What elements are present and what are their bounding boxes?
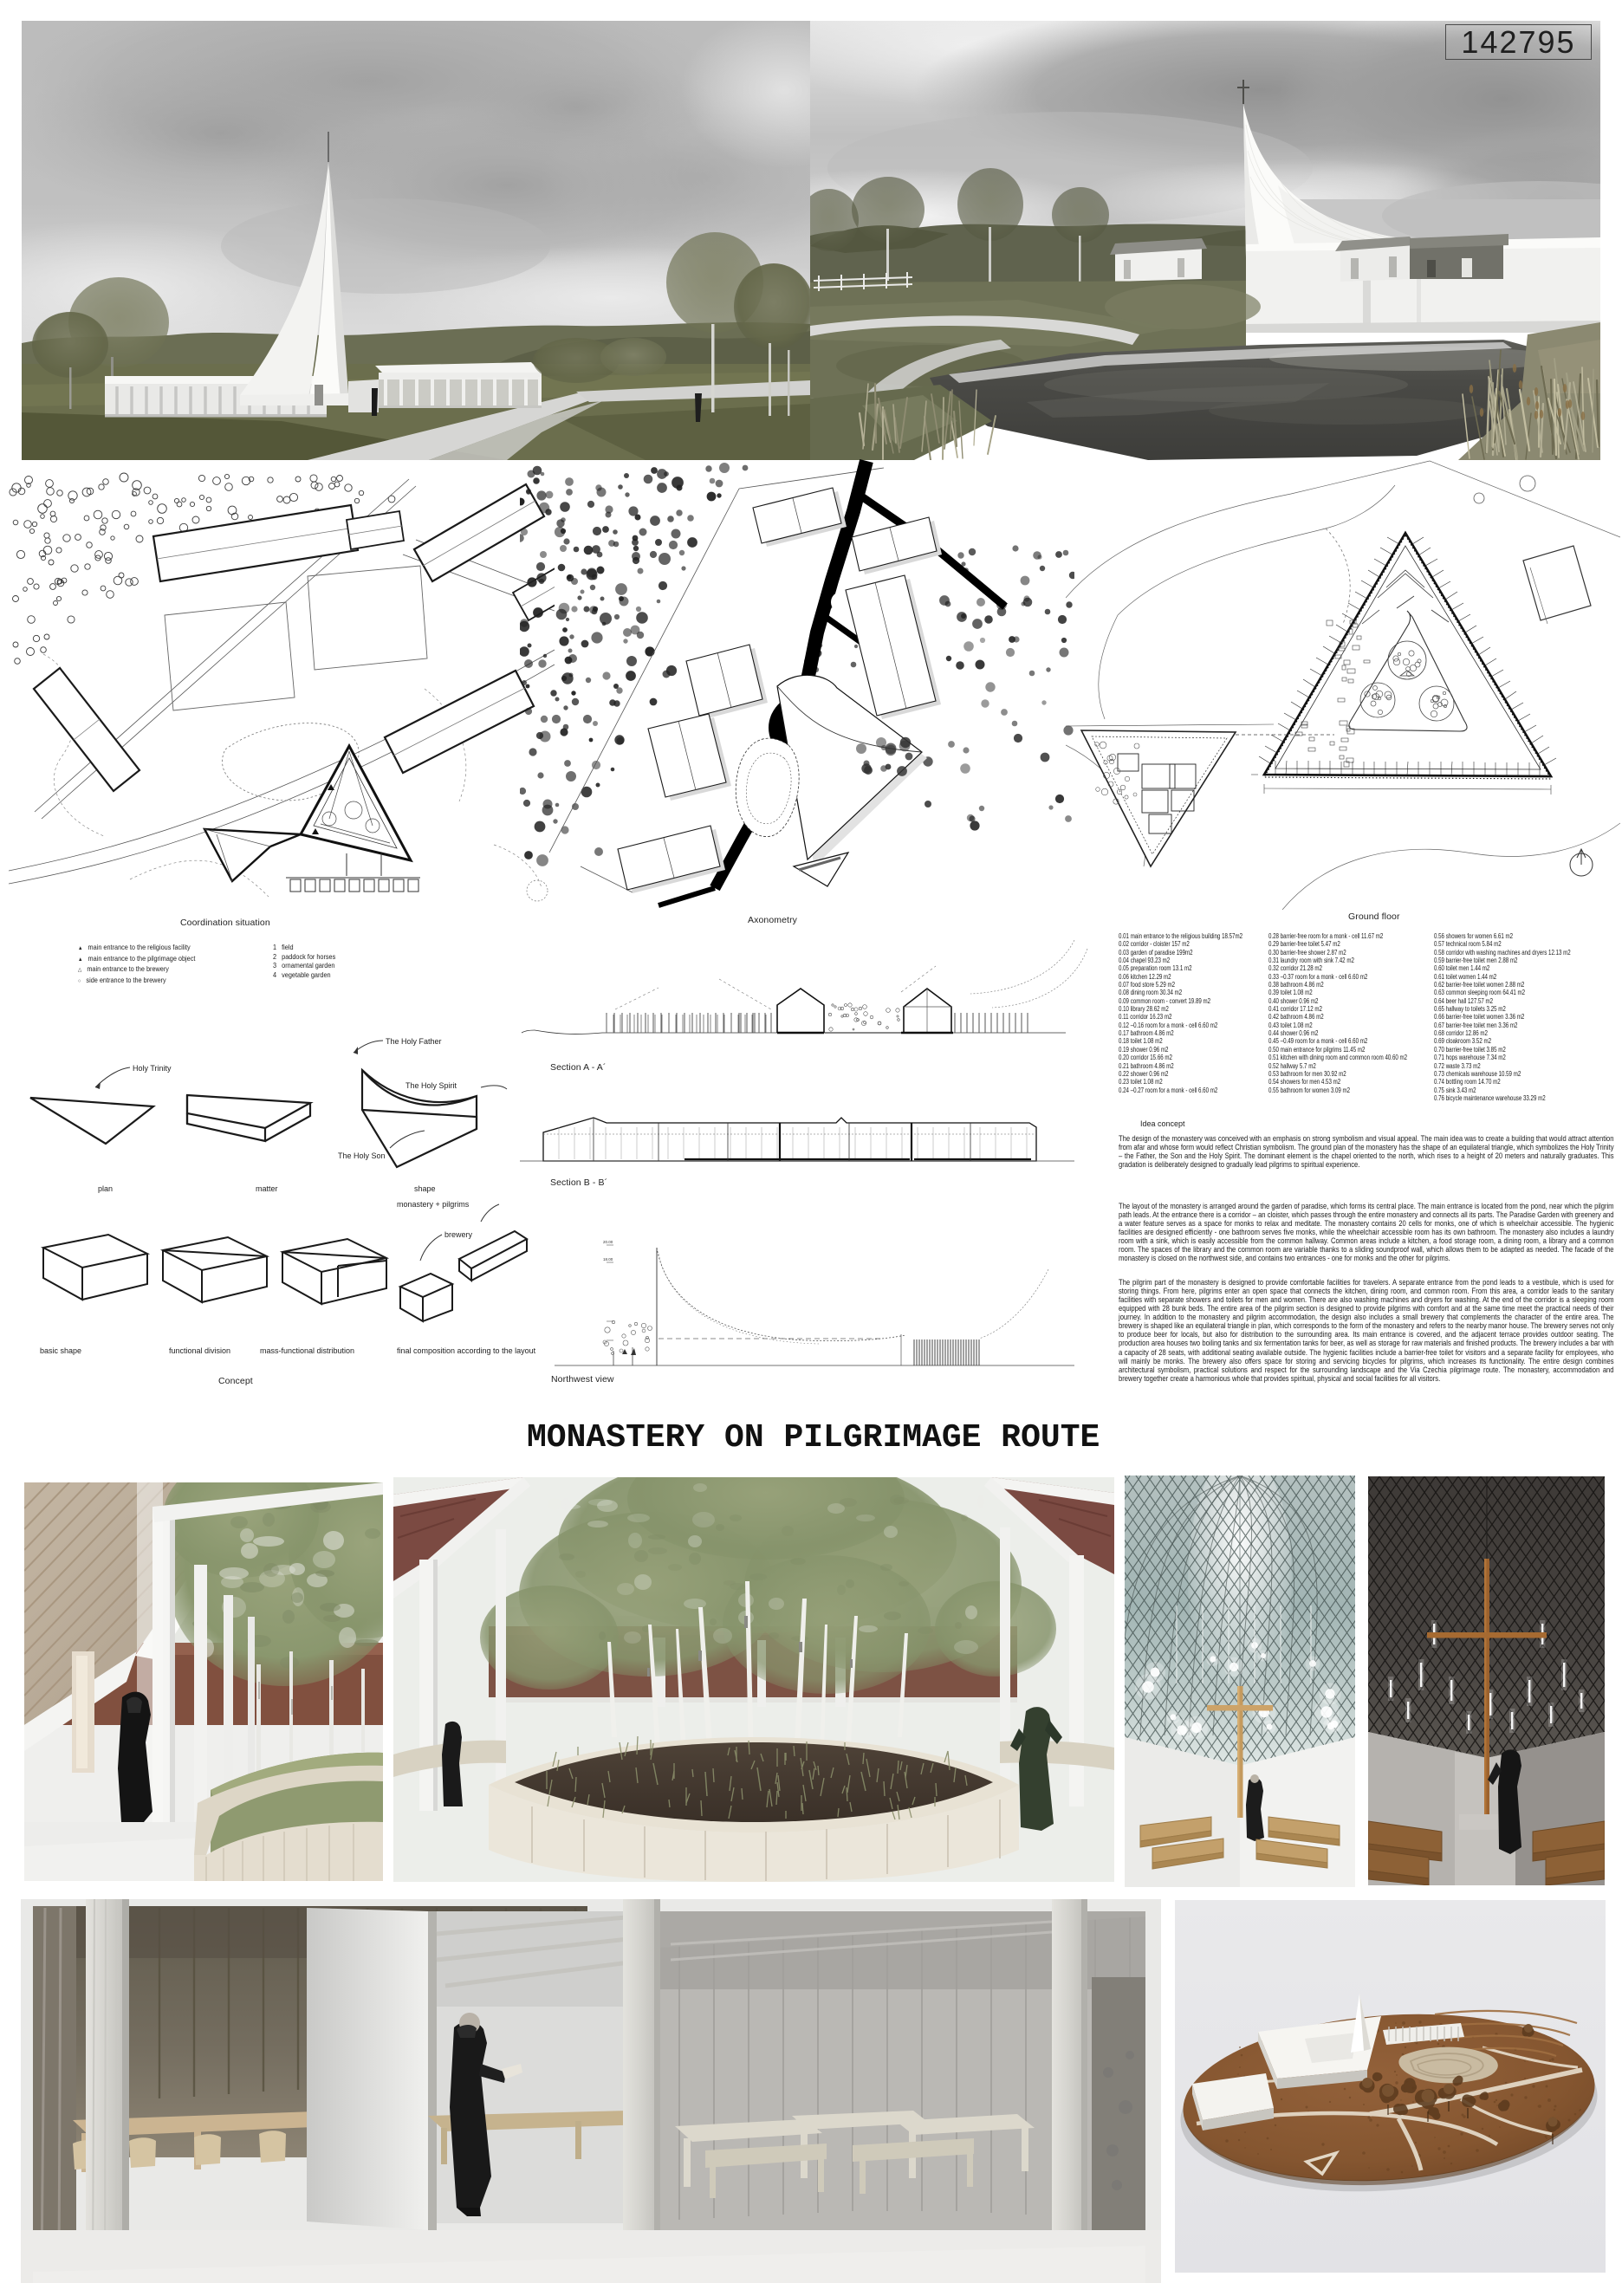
svg-text:basic shape: basic shape: [40, 1346, 81, 1355]
svg-text:shape: shape: [414, 1184, 436, 1193]
svg-text:The Holy Spirit: The Holy Spirit: [405, 1081, 457, 1090]
svg-text:Holy Trinity: Holy Trinity: [133, 1064, 172, 1073]
svg-text:mass-functional distribution: mass-functional distribution: [260, 1346, 354, 1355]
svg-text:matter: matter: [256, 1184, 278, 1193]
svg-text:monastery + pilgrims: monastery + pilgrims: [397, 1200, 470, 1209]
svg-text:The Holy Father: The Holy Father: [386, 1037, 442, 1046]
svg-text:The Holy Son: The Holy Son: [338, 1151, 386, 1160]
svg-text:20.00: 20.00: [603, 1240, 613, 1244]
svg-text:18.00: 18.00: [603, 1257, 613, 1262]
svg-text:functional division: functional division: [169, 1346, 230, 1355]
svg-text:final composition according to: final composition according to the layou…: [397, 1346, 536, 1355]
svg-text:plan: plan: [98, 1184, 113, 1193]
svg-text:brewery: brewery: [444, 1230, 473, 1239]
